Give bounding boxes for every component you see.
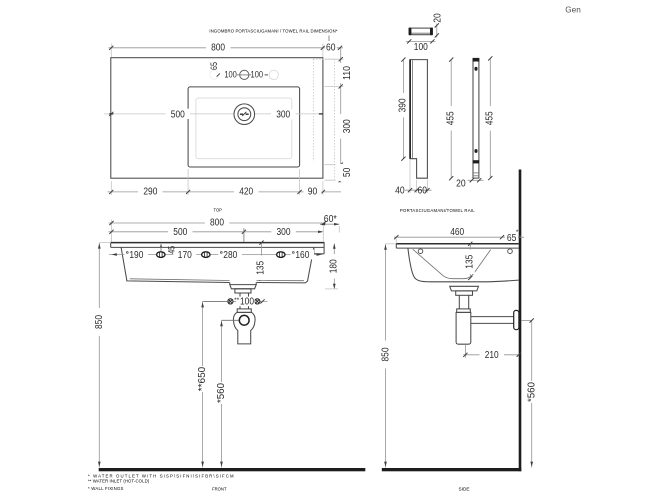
svg-text:**650: **650 bbox=[197, 366, 208, 391]
svg-text:60: 60 bbox=[418, 186, 428, 197]
svg-text:45: 45 bbox=[167, 246, 177, 254]
svg-text:135: 135 bbox=[464, 254, 475, 268]
svg-text:455: 455 bbox=[445, 111, 456, 125]
svg-text:180: 180 bbox=[328, 259, 339, 273]
svg-text:INGOMBRO PORTASCIUGAMANI / TOW: INGOMBRO PORTASCIUGAMANI / TOWEL RAIL DI… bbox=[209, 29, 337, 34]
svg-text:TOP: TOP bbox=[214, 207, 222, 212]
svg-text:**: ** bbox=[234, 297, 240, 304]
svg-text:65: 65 bbox=[209, 62, 219, 70]
svg-text:20: 20 bbox=[433, 13, 444, 23]
svg-text:SIDE: SIDE bbox=[458, 486, 469, 491]
svg-text:190: 190 bbox=[129, 250, 143, 261]
svg-text:850: 850 bbox=[380, 347, 391, 361]
svg-text:* WATER OUTLET WITH SISP\SIFN: * WATER OUTLET WITH SISP\SIFNI\SIFBR\SIF… bbox=[88, 473, 235, 478]
svg-text:455: 455 bbox=[485, 111, 496, 125]
svg-text:100: 100 bbox=[251, 70, 264, 80]
svg-text:110: 110 bbox=[342, 66, 353, 80]
svg-text:800: 800 bbox=[210, 218, 224, 229]
svg-text:Gen: Gen bbox=[565, 6, 581, 15]
svg-text:100: 100 bbox=[240, 297, 254, 308]
svg-text:210: 210 bbox=[485, 350, 499, 361]
svg-text:160: 160 bbox=[295, 250, 309, 261]
svg-text:390: 390 bbox=[397, 98, 408, 112]
svg-text:PORTASCIUGAMANI/TOWEL RAIL: PORTASCIUGAMANI/TOWEL RAIL bbox=[400, 208, 475, 213]
svg-text:280: 280 bbox=[223, 250, 237, 261]
svg-text:*560: *560 bbox=[526, 382, 537, 402]
svg-text:FRONT: FRONT bbox=[212, 486, 227, 491]
svg-text:40: 40 bbox=[395, 186, 405, 197]
svg-text:* WALL FIXINGS: * WALL FIXINGS bbox=[88, 486, 124, 491]
svg-text:290: 290 bbox=[143, 187, 157, 198]
svg-text:300: 300 bbox=[342, 119, 353, 133]
svg-text:*560: *560 bbox=[216, 383, 227, 403]
svg-text:100: 100 bbox=[414, 42, 428, 53]
svg-text:100: 100 bbox=[224, 70, 237, 80]
svg-text:50: 50 bbox=[342, 167, 353, 177]
svg-text:300: 300 bbox=[276, 110, 290, 121]
svg-text:** WATER INLET (HOT-COLD): ** WATER INLET (HOT-COLD) bbox=[88, 479, 150, 484]
svg-text:800: 800 bbox=[211, 42, 225, 53]
svg-text:460: 460 bbox=[450, 227, 464, 238]
svg-text:60: 60 bbox=[326, 42, 336, 53]
svg-text:500: 500 bbox=[171, 109, 185, 120]
svg-text:850: 850 bbox=[94, 315, 105, 329]
svg-text:300: 300 bbox=[277, 227, 291, 238]
svg-text:60*: 60* bbox=[324, 214, 337, 225]
svg-text:170: 170 bbox=[178, 250, 192, 261]
svg-text:135: 135 bbox=[256, 260, 267, 274]
svg-text:90: 90 bbox=[308, 187, 318, 198]
svg-text:500: 500 bbox=[173, 227, 187, 238]
svg-text:420: 420 bbox=[239, 187, 253, 198]
svg-text:20: 20 bbox=[456, 178, 466, 189]
